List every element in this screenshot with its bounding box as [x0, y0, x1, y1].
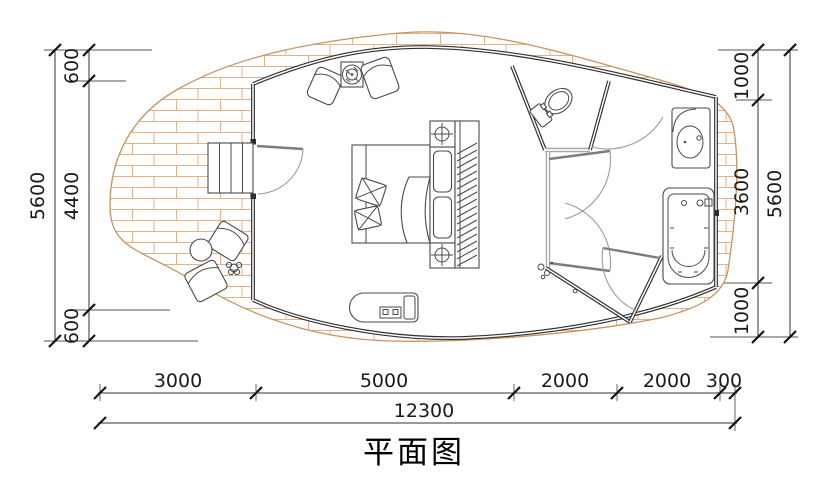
pillow [434, 151, 452, 192]
dim-total-label: 5600 [27, 172, 49, 220]
throw-pillow [354, 206, 382, 231]
bathtub [663, 188, 714, 284]
pillow [434, 197, 452, 238]
outdoor-side-table [190, 239, 212, 261]
dim-label: 1000 [731, 287, 753, 335]
dimensions-bottom: 3000 5000 2000 2000 300 12300 [94, 370, 742, 431]
dim-label: 3000 [154, 370, 202, 392]
daybed [350, 293, 419, 322]
entry-steps [208, 143, 253, 193]
floorplan-drawing: 600 4400 600 5600 1000 3600 1000 5600 30… [0, 0, 837, 496]
dim-label: 2000 [541, 370, 589, 392]
wardrobe [455, 121, 479, 268]
drawing-title: 平面图 [363, 435, 465, 471]
bedside-table [430, 243, 455, 268]
stove-table [341, 62, 363, 87]
dim-label: 600 [61, 48, 83, 84]
dim-label: 2000 [643, 370, 691, 392]
dim-total-label: 5600 [764, 170, 786, 218]
dim-label: 1000 [731, 52, 753, 100]
dim-label: 3600 [731, 168, 753, 216]
bedside-table [430, 121, 455, 147]
door-jamb [251, 194, 257, 200]
dim-label: 300 [706, 370, 742, 392]
double-bed [352, 145, 455, 243]
dim-label: 4400 [61, 172, 83, 220]
washbasin [672, 108, 710, 168]
floorplan-canvas: 600 4400 600 5600 1000 3600 1000 5600 30… [0, 0, 837, 496]
dim-label: 600 [61, 308, 83, 344]
blanket [401, 177, 430, 243]
dim-label: 5000 [360, 370, 408, 392]
dim-total-label: 12300 [394, 400, 454, 422]
